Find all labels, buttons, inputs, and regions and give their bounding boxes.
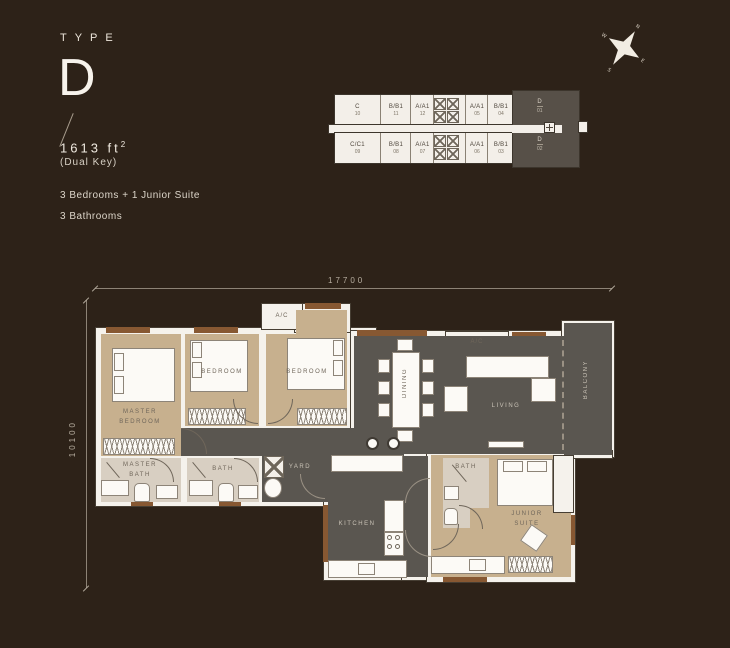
dimension-tick [609, 285, 615, 291]
area-exponent: 2 [121, 140, 128, 149]
vanity [156, 485, 178, 499]
room-label-ac1: A/C [262, 312, 302, 322]
tv-console [488, 441, 524, 448]
lift-icon [434, 111, 446, 123]
bar-stool [387, 437, 400, 450]
key-plan-unit-d02: D 02 [537, 137, 543, 152]
pillow [527, 461, 547, 472]
stove-burner [395, 544, 400, 549]
dining-chair [397, 339, 413, 351]
key-plan-unit: A/A1 05 [465, 95, 488, 125]
key-plan-unit: C 10 [335, 95, 380, 125]
room-label-balcony: BALCONY [583, 360, 589, 399]
key-plan-unit: B/B1 08 [380, 133, 411, 163]
compass-north-label: N [634, 23, 641, 30]
dimension-width-label: 17700 [328, 276, 365, 285]
bath-sink [189, 480, 213, 496]
sliding-door [562, 340, 564, 450]
room-label-suite-bath: BATH [444, 463, 488, 473]
breakfast-counter [331, 455, 403, 472]
room-label-ac2: A/C [457, 338, 497, 348]
key-plan-top-row: C 10 B/B1 11 A/A1 12 A/A1 05 B/B1 04 [334, 94, 514, 126]
room-label-master-bath: MASTER BATH [105, 461, 175, 480]
suite-ac-ledge [553, 455, 574, 513]
toilet [218, 483, 234, 502]
room-label-living: LIVING [478, 402, 534, 412]
feature-bathrooms: 3 Bathrooms [60, 211, 122, 222]
key-plan-unit: A/A1 12 [410, 95, 434, 125]
stove-burner [395, 535, 400, 540]
room-label-bedroom2: BEDROOM [187, 368, 257, 378]
wood-accent [305, 303, 341, 309]
dining-chair [422, 381, 434, 395]
stove-burner [387, 544, 392, 549]
room-label-master-bedroom: MASTER BEDROOM [105, 408, 175, 427]
key-plan-bottom-row: C/C1 09 B/B1 08 A/A1 07 A/A1 06 B/B1 03 [334, 132, 514, 164]
area-unit: ft [108, 140, 121, 155]
lift-icon [434, 148, 446, 160]
toilet [134, 483, 150, 502]
lift-icon [447, 111, 459, 123]
dining-chair [422, 359, 434, 373]
room-label-yard: YARD [280, 463, 320, 473]
key-plan-unit: A/A1 07 [410, 133, 434, 163]
pillow [503, 461, 523, 472]
pillow [333, 340, 343, 356]
dining-chair [422, 403, 434, 417]
key-plan-unit: B/B1 03 [487, 133, 514, 163]
area-text: 1613 ft2 [60, 140, 128, 155]
entry-corridor-floor [404, 456, 428, 577]
dual-key-note: (Dual Key) [60, 157, 117, 168]
dimension-tick [83, 585, 89, 591]
compass-icon: N E S W [584, 6, 664, 86]
lift-icon [447, 148, 459, 160]
type-label: TYPE [60, 32, 121, 44]
room-label-junior-suite: JUNIOR SUITE [497, 510, 557, 529]
key-plan-right-tab [578, 121, 588, 133]
suite-bath-sink [444, 486, 459, 500]
type-letter: D [58, 48, 96, 108]
suite-sink [469, 559, 486, 571]
dining-chair [378, 359, 390, 373]
compass-east-label: E [639, 58, 645, 65]
dimension-height-line [86, 300, 87, 588]
sofa-corner [531, 378, 556, 402]
wood-accent [106, 327, 150, 333]
dimension-width-line [95, 288, 612, 289]
wardrobe [508, 556, 553, 573]
room-label-bedroom3: BEDROOM [272, 368, 342, 378]
entry-marker-icon [544, 122, 555, 133]
suite-counter [431, 556, 505, 574]
key-plan: C 10 B/B1 11 A/A1 12 A/A1 05 B/B1 04 C/C… [332, 88, 584, 168]
pillow [114, 353, 124, 371]
area-value: 1613 [60, 140, 101, 155]
key-plan-unit-d01: D 01 [537, 99, 543, 114]
key-plan-unit: C/C1 09 [335, 133, 380, 163]
bar-stool [366, 437, 379, 450]
compass-south-label: S [606, 67, 612, 74]
key-plan-unit: B/B1 04 [487, 95, 514, 125]
key-plan-unit: B/B1 11 [380, 95, 411, 125]
kitchen-counter [384, 500, 404, 532]
dryer [264, 478, 282, 498]
wardrobe [297, 408, 347, 425]
pillow [114, 376, 124, 394]
armchair [444, 386, 468, 412]
dining-chair [378, 403, 390, 417]
sofa [466, 356, 549, 378]
lift-icon [447, 135, 459, 147]
wood-accent [194, 327, 238, 333]
stove-burner [387, 535, 392, 540]
dimension-height-label: 10100 [68, 420, 77, 457]
kitchen-sink [358, 563, 375, 575]
key-plan-unit: A/A1 06 [465, 133, 488, 163]
wardrobe [103, 438, 175, 455]
lift-icon [447, 98, 459, 110]
room-label-dining: DINING [402, 368, 408, 398]
vanity [238, 485, 258, 499]
room-label-bath: BATH [195, 465, 251, 475]
bath-sink [101, 480, 129, 496]
dining-chair [378, 381, 390, 395]
lift-icon [434, 98, 446, 110]
compass-west-label: W [600, 32, 607, 40]
room-label-kitchen: KITCHEN [330, 520, 384, 530]
lift-icon [434, 135, 446, 147]
feature-bedrooms: 3 Bedrooms + 1 Junior Suite [60, 190, 200, 201]
pillow [192, 342, 202, 358]
toilet [444, 508, 458, 525]
